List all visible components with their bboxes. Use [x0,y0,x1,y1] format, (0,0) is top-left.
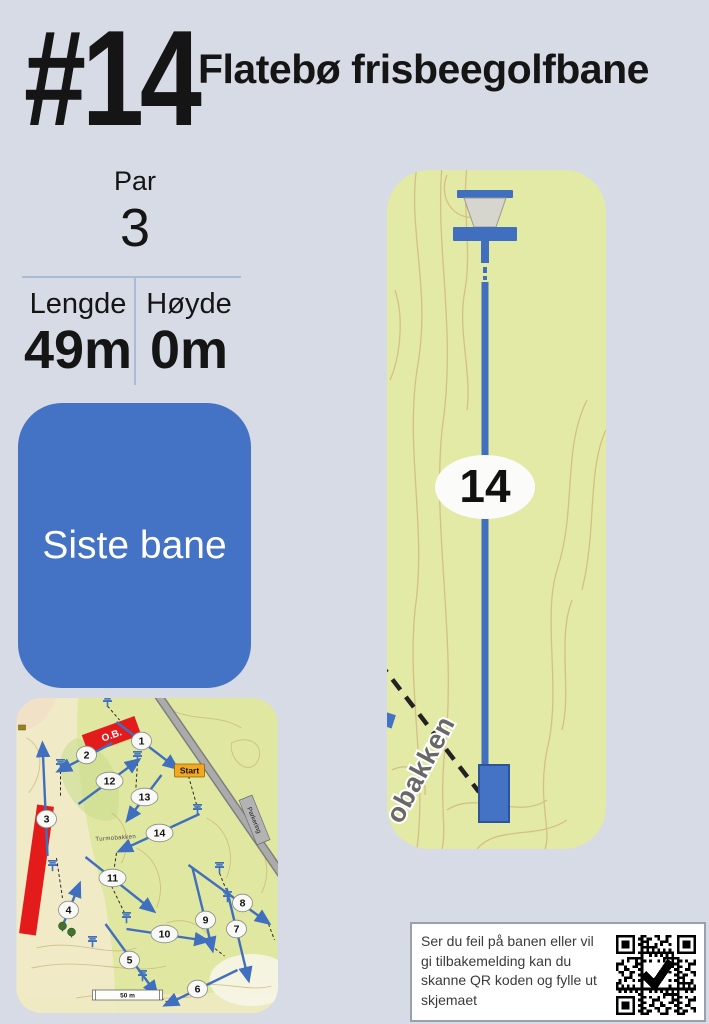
overview-map-svg: O.B. O.B. Star [16,698,278,1013]
hole-detail-map: obakken 14 [387,170,606,849]
hole-marker: 9 [196,911,216,929]
hole-marker: 6 [188,980,208,998]
hole-marker: 12 [96,772,123,790]
hole-map-svg: obakken 14 [387,170,606,849]
par-block: Par 3 [60,166,210,259]
hole-number-badge-label: 14 [459,460,511,512]
hole-marker-number: 1 [139,736,145,748]
horizontal-divider [22,276,241,278]
tee-pad [479,765,509,822]
course-overview-map: O.B. O.B. Star [16,698,278,1013]
hole-marker: 10 [151,925,178,943]
feedback-text: Ser du feil på banen eller vil gi tilbak… [421,932,606,1010]
hole-marker-number: 13 [139,792,151,804]
hole-marker: 2 [77,746,97,764]
hole-marker: 14 [146,824,173,842]
hole-marker: 8 [233,894,253,912]
hole-marker-number: 7 [234,924,240,936]
status-badge: Siste bane [18,403,251,688]
hole-marker: 3 [37,810,57,828]
hole-marker: 4 [59,901,79,919]
start-marker-label: Start [180,766,200,776]
scale-bar: 50 m [93,990,163,1000]
hole-marker-number: 10 [159,929,171,941]
length-value: 49m [22,319,134,381]
course-card-page: #14 Flatebø frisbeegolfbane Par 3 Lengde… [0,0,709,1024]
hole-marker: 11 [99,869,126,887]
hole-marker-number: 12 [104,776,116,788]
status-badge-label: Siste bane [42,524,226,568]
map-sign-marker [19,725,26,730]
hole-marker-number: 11 [107,873,118,885]
hole-marker-number: 2 [84,750,90,762]
page-title: #14 [24,16,198,141]
qr-code-svg [613,932,699,1018]
hole-marker: 7 [227,920,247,938]
hole-marker-number: 4 [66,905,72,917]
length-label: Lengde [22,288,134,321]
hole-marker-number: 8 [240,898,246,910]
height-value: 0m [136,319,242,381]
feedback-panel: Ser du feil på banen eller vil gi tilbak… [410,922,706,1022]
hole-marker-number: 6 [195,984,201,996]
hole-marker: 5 [120,951,140,969]
hole-marker-number: 9 [203,915,209,927]
course-title: Flatebø frisbeegolfbane [198,46,649,93]
hole-marker-number: 5 [127,955,133,967]
height-label: Høyde [136,288,242,321]
hole-marker-number: 14 [154,828,166,840]
hole-marker: 1 [132,732,152,750]
hole-marker-number: 3 [44,814,50,826]
hole-marker: 13 [131,788,158,806]
throw-line [482,282,489,765]
start-marker: Start [175,764,205,777]
qr-code [613,932,699,1018]
hole-number-badge: 14 [435,455,535,519]
scale-bar-label: 50 m [120,993,135,1000]
par-value: 3 [60,197,210,259]
par-label: Par [60,166,210,197]
